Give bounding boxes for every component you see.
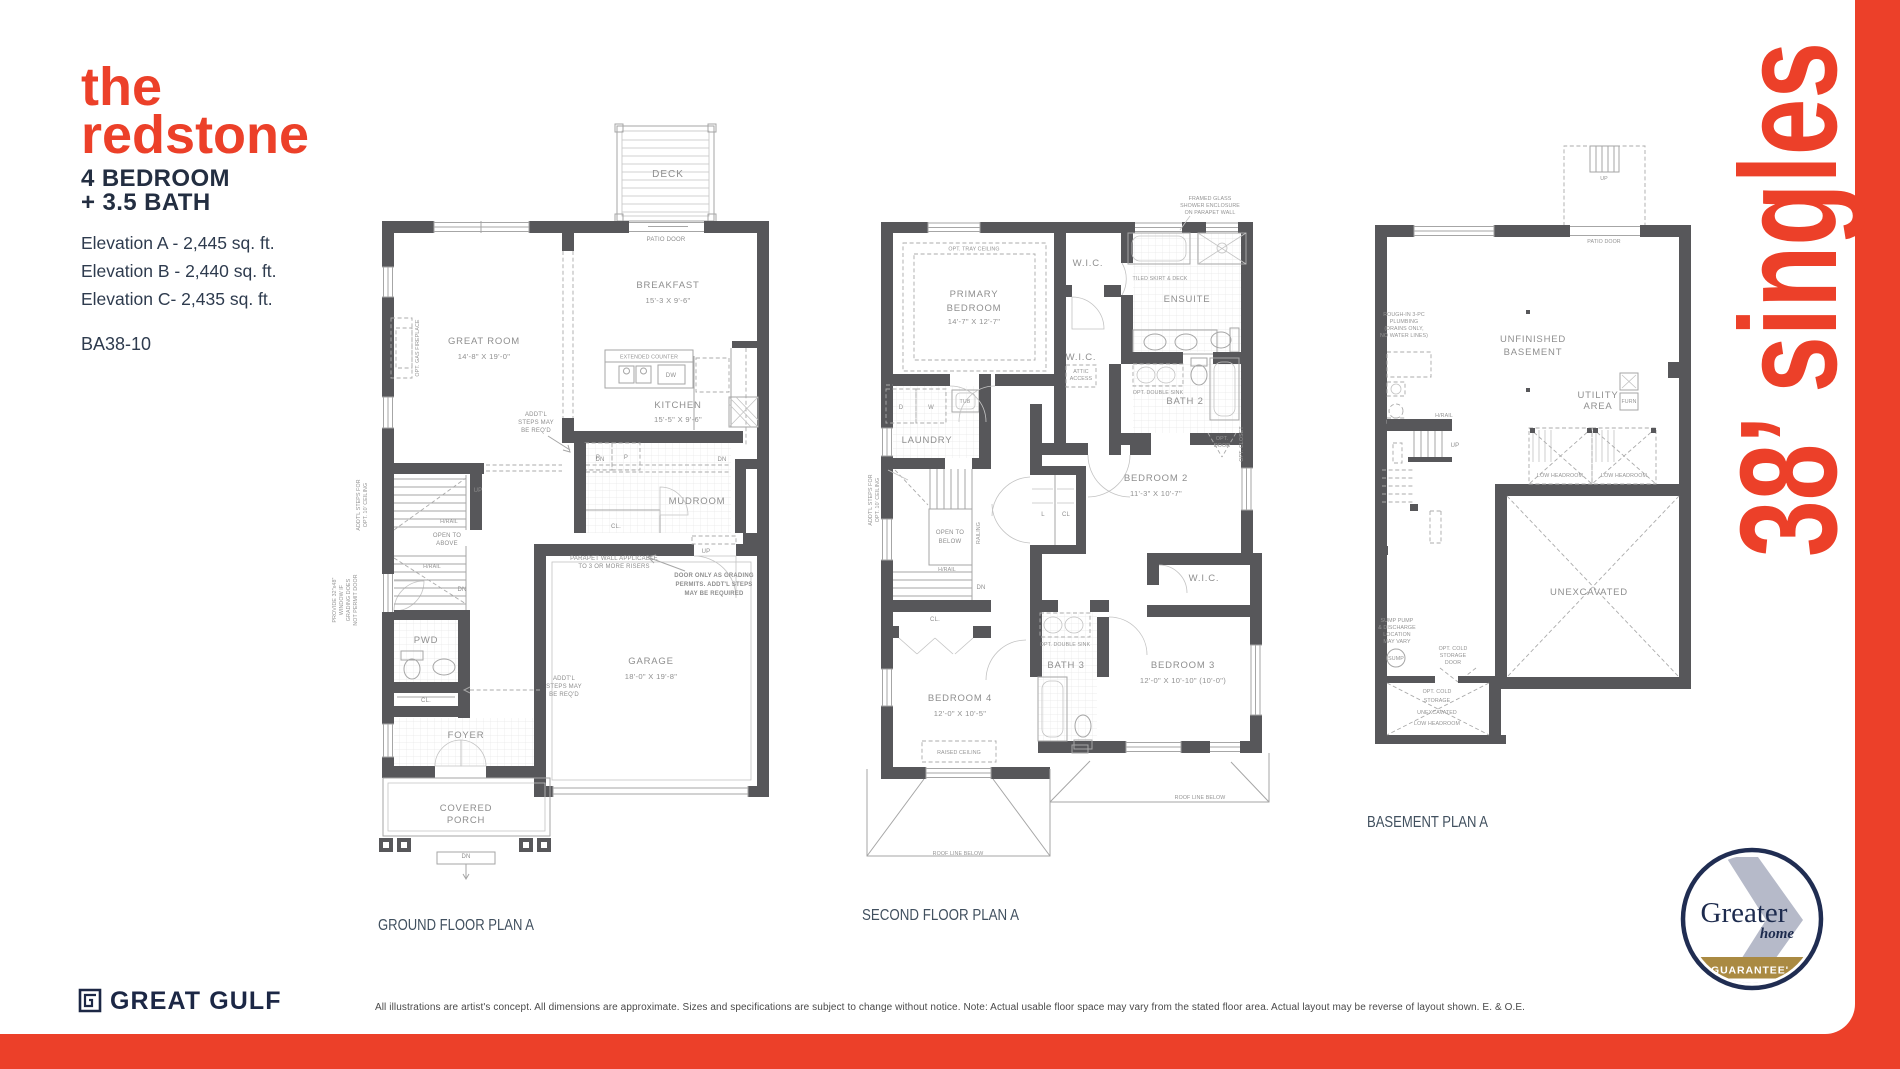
- svg-text:GREAT ROOM: GREAT ROOM: [448, 336, 520, 347]
- svg-text:STEPS MAY: STEPS MAY: [546, 684, 582, 690]
- svg-text:WINDOW IF: WINDOW IF: [339, 584, 345, 615]
- svg-text:ROOF LINE BELOW: ROOF LINE BELOW: [1175, 795, 1226, 801]
- svg-text:& DISCHARGE: & DISCHARGE: [1378, 625, 1416, 631]
- svg-text:OPT. DOUBLE SINK: OPT. DOUBLE SINK: [1040, 642, 1091, 648]
- svg-text:SUMP: SUMP: [1388, 656, 1404, 662]
- svg-text:CL: CL: [1062, 512, 1071, 518]
- svg-text:GROUND FLOOR PLAN A: GROUND FLOOR PLAN A: [378, 917, 534, 934]
- svg-text:12'-0" X 10'-5": 12'-0" X 10'-5": [934, 709, 986, 718]
- svg-text:GUARANTEE': GUARANTEE': [1711, 965, 1789, 977]
- svg-text:PERMITS. ADDT'L STEPS: PERMITS. ADDT'L STEPS: [676, 582, 753, 588]
- svg-text:OPT. 10' CEILING: OPT. 10' CEILING: [875, 478, 881, 522]
- svg-text:ADDT'L: ADDT'L: [553, 676, 575, 682]
- svg-text:OPEN TO: OPEN TO: [936, 530, 964, 536]
- svg-text:LOW HEADROOM: LOW HEADROOM: [1601, 473, 1647, 479]
- svg-text:RAILING: RAILING: [976, 522, 982, 544]
- svg-text:D: D: [899, 405, 904, 411]
- svg-text:L: L: [1041, 512, 1045, 518]
- svg-text:OPEN TO: OPEN TO: [433, 533, 461, 539]
- svg-text:W.I.C.: W.I.C.: [1189, 573, 1220, 584]
- svg-text:DN: DN: [976, 585, 985, 591]
- svg-text:18'-0" X 19'-8": 18'-0" X 19'-8": [625, 672, 677, 681]
- svg-text:LAUNDRY: LAUNDRY: [902, 435, 953, 446]
- svg-text:15'-5" X 9'-6": 15'-5" X 9'-6": [654, 415, 702, 424]
- svg-text:ATTIC: ATTIC: [1073, 369, 1088, 375]
- svg-text:OPT. COLD: OPT. COLD: [1423, 689, 1452, 695]
- svg-text:COVERED: COVERED: [440, 803, 493, 814]
- svg-text:12'-0" X 10'-10" (10'-0"): 12'-0" X 10'-10" (10'-0"): [1140, 676, 1226, 685]
- svg-text:H/RAIL: H/RAIL: [440, 519, 458, 525]
- svg-text:BELOW: BELOW: [939, 539, 962, 545]
- svg-text:FOYER: FOYER: [448, 730, 485, 741]
- svg-text:14'-7" X 12'-7": 14'-7" X 12'-7": [948, 317, 1000, 326]
- svg-text:UP: UP: [1451, 443, 1460, 449]
- svg-text:FRAMED GLASS: FRAMED GLASS: [1189, 196, 1232, 202]
- svg-text:11'-3" X 10'-7": 11'-3" X 10'-7": [1130, 489, 1182, 498]
- svg-text:38’ singles: 38’ singles: [1712, 42, 1866, 557]
- svg-text:GARAGE: GARAGE: [628, 656, 673, 667]
- svg-text:STORAGE: STORAGE: [1440, 653, 1467, 659]
- svg-text:14'-8" X 19'-0": 14'-8" X 19'-0": [458, 352, 510, 361]
- svg-text:NO WATER LINES): NO WATER LINES): [1380, 333, 1428, 339]
- svg-text:ADDT'L STEPS FOR: ADDT'L STEPS FOR: [356, 479, 362, 530]
- svg-text:PATIO DOOR: PATIO DOOR: [647, 237, 686, 243]
- svg-text:UNFINISHED: UNFINISHED: [1500, 334, 1566, 345]
- svg-text:PROVIDE 32"x48": PROVIDE 32"x48": [332, 577, 338, 622]
- svg-text:BATH 3: BATH 3: [1047, 660, 1084, 671]
- svg-text:LOW HEADROOM: LOW HEADROOM: [1414, 721, 1460, 727]
- svg-text:W.I.C.: W.I.C.: [1066, 352, 1097, 363]
- svg-text:BE REQ'D: BE REQ'D: [521, 428, 551, 434]
- svg-text:LOCATION: LOCATION: [1383, 632, 1411, 638]
- svg-text:PRIMARY: PRIMARY: [950, 289, 999, 300]
- svg-text:W: W: [928, 405, 934, 411]
- svg-text:ROOF LINE BELOW: ROOF LINE BELOW: [933, 851, 984, 857]
- svg-text:TILED SKIRT & DECK: TILED SKIRT & DECK: [1133, 276, 1188, 282]
- svg-text:ADDT'L: ADDT'L: [525, 412, 547, 418]
- svg-text:OPT. 10' CEILING: OPT. 10' CEILING: [363, 483, 369, 527]
- svg-text:MAY VARY: MAY VARY: [1383, 639, 1411, 645]
- svg-text:LOW HEADROOM: LOW HEADROOM: [1537, 473, 1583, 479]
- svg-text:TO 3 OR MORE RISERS: TO 3 OR MORE RISERS: [578, 564, 649, 570]
- svg-text:STORAGE: STORAGE: [1424, 698, 1451, 704]
- svg-text:OPT. TRAY CEILING: OPT. TRAY CEILING: [948, 247, 999, 253]
- svg-text:PWD: PWD: [414, 635, 439, 646]
- svg-text:CL.: CL.: [930, 617, 940, 623]
- svg-text:MUDROOM: MUDROOM: [669, 496, 726, 507]
- svg-text:BEDROOM: BEDROOM: [947, 303, 1002, 314]
- svg-text:ACCESS: ACCESS: [1070, 376, 1093, 382]
- svg-text:home: home: [1760, 926, 1795, 942]
- svg-text:NOT PERMIT DOOR: NOT PERMIT DOOR: [353, 574, 359, 625]
- svg-text:BEDROOM 3: BEDROOM 3: [1151, 660, 1215, 671]
- svg-text:H/RAIL: H/RAIL: [938, 567, 956, 573]
- svg-text:DN: DN: [457, 587, 466, 593]
- svg-text:UP: UP: [1600, 176, 1608, 182]
- svg-text:BE REQ'D: BE REQ'D: [549, 692, 579, 698]
- svg-text:BATH 2: BATH 2: [1166, 396, 1203, 407]
- svg-text:W.I.C.: W.I.C.: [1073, 258, 1104, 269]
- svg-text:H/RAIL: H/RAIL: [423, 564, 441, 570]
- svg-text:BREAKFAST: BREAKFAST: [636, 280, 699, 291]
- svg-text:15'-3 X 9'-6": 15'-3 X 9'-6": [646, 296, 691, 305]
- svg-text:SHOWER ENCLOSURE: SHOWER ENCLOSURE: [1180, 203, 1240, 209]
- svg-text:DOOR: DOOR: [1214, 443, 1230, 449]
- svg-text:SECOND FLOOR PLAN A: SECOND FLOOR PLAN A: [862, 907, 1019, 924]
- svg-text:ON PARAPET WALL: ON PARAPET WALL: [1185, 210, 1236, 216]
- svg-text:UP: UP: [474, 488, 483, 494]
- svg-text:DECK: DECK: [652, 169, 684, 180]
- svg-text:UNEXCAVATED: UNEXCAVATED: [1417, 710, 1457, 716]
- svg-text:STEPS MAY: STEPS MAY: [518, 420, 554, 426]
- svg-text:ABOVE: ABOVE: [436, 541, 458, 547]
- svg-text:OPT.: OPT.: [1216, 436, 1228, 442]
- svg-text:DOOR ONLY AS GRADING: DOOR ONLY AS GRADING: [674, 573, 754, 579]
- svg-text:GRADING DOES: GRADING DOES: [346, 578, 352, 621]
- svg-text:(DRAINS ONLY,: (DRAINS ONLY,: [1384, 326, 1423, 332]
- svg-text:P: P: [624, 455, 628, 461]
- svg-text:DN: DN: [461, 854, 470, 860]
- svg-text:RAISED CEILING: RAISED CEILING: [937, 750, 981, 756]
- svg-text:UTILITY: UTILITY: [1578, 390, 1619, 401]
- svg-text:PLUMBING: PLUMBING: [1390, 319, 1418, 325]
- svg-text:ADDT'L STEPS FOR: ADDT'L STEPS FOR: [868, 474, 874, 525]
- svg-text:BEDROOM 2: BEDROOM 2: [1124, 473, 1188, 484]
- svg-text:DOOR: DOOR: [1445, 660, 1461, 666]
- svg-text:OPT. COLD: OPT. COLD: [1439, 646, 1468, 652]
- svg-text:CL.: CL.: [421, 698, 431, 704]
- svg-text:BEDROOM 4: BEDROOM 4: [928, 693, 992, 704]
- svg-text:DN: DN: [717, 457, 726, 463]
- svg-text:FURN: FURN: [1621, 399, 1636, 405]
- svg-text:MAY BE REQUIRED: MAY BE REQUIRED: [684, 591, 743, 597]
- svg-text:DW: DW: [666, 373, 677, 379]
- svg-text:GREAT GULF: GREAT GULF: [110, 987, 282, 1015]
- svg-text:ENSUITE: ENSUITE: [1164, 294, 1211, 305]
- svg-text:PARAPET WALL APPLICABLE: PARAPET WALL APPLICABLE: [570, 556, 658, 562]
- svg-text:SUMP PUMP: SUMP PUMP: [1381, 618, 1414, 624]
- svg-text:UP: UP: [702, 549, 711, 555]
- svg-text:CL.: CL.: [611, 524, 621, 530]
- svg-text:OPT. GAS FIREPLACE: OPT. GAS FIREPLACE: [415, 319, 421, 377]
- svg-text:PORCH: PORCH: [447, 815, 485, 826]
- svg-text:BASEMENT PLAN A: BASEMENT PLAN A: [1367, 814, 1488, 831]
- svg-text:UNEXCAVATED: UNEXCAVATED: [1550, 587, 1628, 598]
- svg-text:AREA: AREA: [1583, 401, 1612, 412]
- svg-text:KITCHEN: KITCHEN: [654, 400, 701, 411]
- svg-text:DN: DN: [595, 457, 604, 463]
- svg-text:PATIO DOOR: PATIO DOOR: [1587, 239, 1621, 245]
- svg-text:EXTENDED COUNTER: EXTENDED COUNTER: [620, 355, 678, 361]
- svg-text:Greater: Greater: [1701, 897, 1788, 929]
- svg-text:OPT. CLOSET: OPT. CLOSET: [1239, 426, 1245, 462]
- svg-text:BASEMENT: BASEMENT: [1504, 347, 1563, 358]
- svg-text:H/RAIL: H/RAIL: [1435, 413, 1453, 419]
- svg-text:ROUGH-IN 3-PC: ROUGH-IN 3-PC: [1383, 312, 1425, 318]
